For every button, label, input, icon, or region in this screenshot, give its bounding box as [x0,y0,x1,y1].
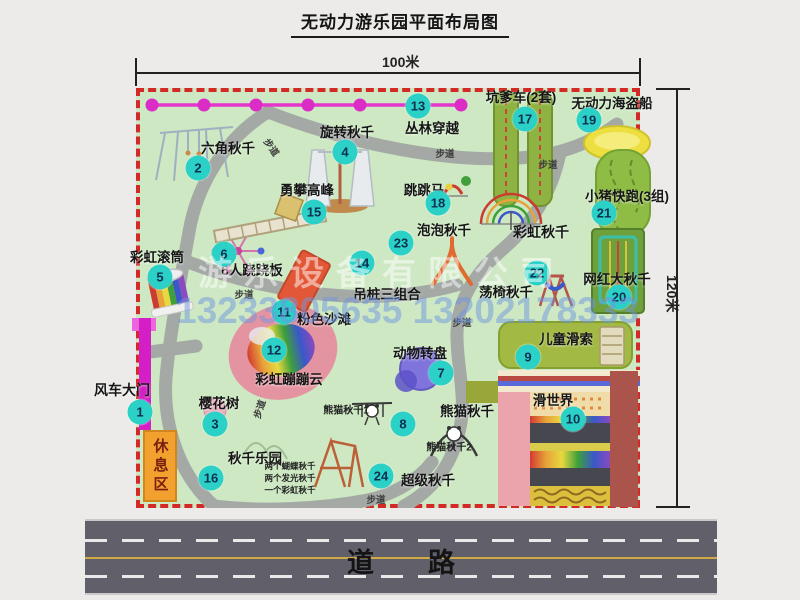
park-plan-page: 无动力游乐园平面布局图 100米 120米 [0,0,800,600]
title-wrap: 无动力游乐园平面布局图 [0,8,800,38]
road-label: 道 路 [85,541,717,580]
dim-top-line [136,72,640,74]
rest-area-label: 休息区 [150,438,171,495]
dim-width-label: 100米 [382,52,419,72]
road-strip: 道 路 [85,519,717,595]
dim-right-tick-top [656,88,690,90]
page-title: 无动力游乐园平面布局图 [291,8,509,38]
dim-height-label: 120米 [662,275,682,312]
watermark-company: 游乐设备有限公司 [198,246,566,295]
dim-right-tick-bottom [656,506,690,508]
dim-top-tick-right [639,58,641,86]
dim-top-tick-left [135,58,137,86]
watermark-phone: 13233805635 13202178333 [176,290,639,332]
rest-area: 休息区 [143,430,177,502]
